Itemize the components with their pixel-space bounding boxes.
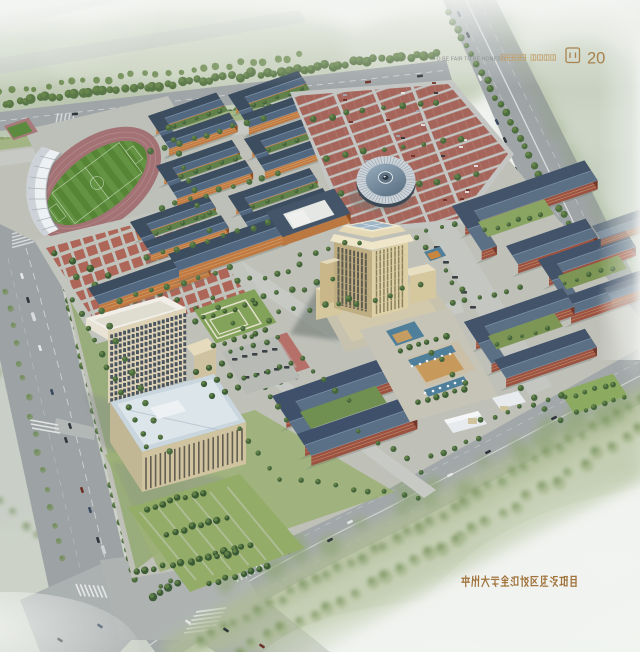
svg-text:✦O BE FAIR TO BE HONEST/: ✦O BE FAIR TO BE HONEST/ <box>432 57 506 63</box>
svg-text:20: 20 <box>587 50 605 68</box>
